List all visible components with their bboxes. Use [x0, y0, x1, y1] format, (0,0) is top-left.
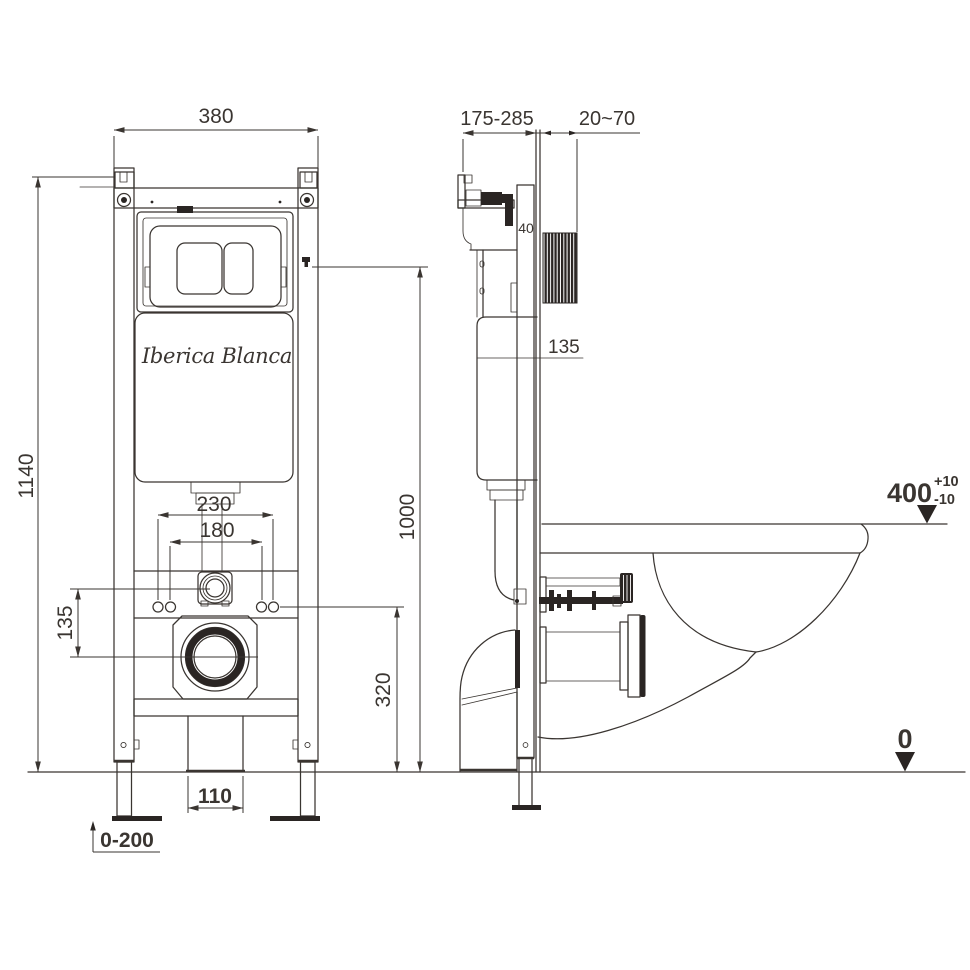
- bolt-hole-outer-left: [153, 602, 163, 612]
- level-marker-0: [895, 752, 915, 772]
- bottom-crossbar: [134, 699, 298, 716]
- wall-dim-arrow-left: [543, 131, 551, 136]
- supply-drop-pipe: [505, 202, 513, 226]
- dim-leg-range: 0-200: [100, 829, 154, 852]
- connector-ring-inner: [206, 579, 224, 597]
- column-pinhole: [523, 743, 528, 748]
- left-leg-pinhole: [121, 742, 126, 747]
- side-dimensions: 175-285 20~70 400 +10 -10 0: [460, 108, 958, 772]
- dim-bowl-tol-minus: -10: [934, 492, 955, 508]
- dim-outlet-width: 110: [198, 785, 232, 808]
- dim-bowl-height: 400: [887, 478, 932, 508]
- cistern-tank: [135, 313, 293, 482]
- rod-buffer-block: [620, 573, 633, 603]
- side-flushpipe-elbow: [495, 571, 514, 600]
- technical-drawing-page: Iberica Blanca: [0, 0, 970, 970]
- dim-connector-offset: 135: [54, 605, 77, 640]
- wall-dim-arrow-right: [569, 131, 577, 136]
- drain-elbow: [460, 630, 520, 771]
- flush-button-large: [177, 243, 222, 294]
- installation-frame-drawing: Iberica Blanca: [0, 0, 970, 970]
- dim-bowl-tol-plus: +10: [934, 474, 959, 490]
- right-rivet-dot: [279, 201, 282, 204]
- bowl-front-curve: [756, 553, 860, 652]
- dim-bolt-inner: 180: [199, 519, 234, 542]
- tank-side-outline: [477, 317, 537, 480]
- tank-base-step1: [487, 480, 525, 490]
- finished-wall-hatch: [543, 233, 577, 303]
- dim-tank-ref: 135: [548, 337, 580, 358]
- left-hanger-tab: [115, 172, 134, 188]
- left-hanger-notch: [120, 172, 127, 182]
- drain-spool: [540, 615, 646, 697]
- flush-plate: [150, 226, 281, 307]
- bolt-hole-inner-right: [257, 602, 267, 612]
- supply-fitting: [466, 190, 481, 206]
- bolt-hole-outer-right: [269, 602, 279, 612]
- dim-wall-thickness: 20~70: [579, 108, 635, 130]
- side-view: 40 135: [458, 130, 947, 810]
- dim-frame-depth: 175-285: [460, 108, 533, 130]
- side-flushpipe-dot: [515, 599, 519, 603]
- connector-ring-outer: [200, 573, 230, 603]
- left-leg-clip: [134, 740, 139, 749]
- dim-profile-depth: 40: [518, 220, 534, 236]
- bowl-back-curve: [653, 553, 756, 652]
- left-leg: [117, 762, 132, 816]
- bolt-hole-inner-left: [166, 602, 176, 612]
- left-rail: [114, 168, 134, 762]
- dim-bolt-outer: 230: [196, 493, 231, 516]
- elbow-flange: [515, 630, 520, 688]
- left-screw-center: [121, 197, 127, 203]
- tank-base-step2: [490, 490, 523, 500]
- access-opening-inner: [143, 218, 287, 306]
- right-screw-center: [304, 197, 310, 203]
- flush-button-small: [224, 243, 253, 294]
- tank-lid-profile: [463, 208, 471, 250]
- right-leg: [301, 762, 316, 816]
- water-inlet-marker: [302, 257, 310, 267]
- front-dimensions: 380 1140 230 180 135 320 1000 110: [15, 105, 428, 852]
- access-opening-outer: [137, 212, 293, 312]
- dim-floor-level: 0: [897, 724, 912, 754]
- brand-logo: Iberica Blanca: [141, 344, 292, 368]
- flush-pipe-collar: [191, 482, 240, 493]
- bowl-nose: [860, 524, 868, 553]
- dim-drain-height: 320: [372, 672, 395, 707]
- right-hanger-notch: [305, 172, 312, 182]
- plate-latch: [177, 206, 193, 213]
- toilet-bowl-profile: [538, 524, 947, 739]
- dim-frame-height: 1140: [15, 453, 38, 498]
- left-foot-plate: [112, 816, 162, 821]
- side-foot-plate: [512, 805, 541, 810]
- plate-clip-right: [281, 267, 286, 287]
- bowl-bottom-curve: [538, 652, 756, 739]
- supply-valve-body: [481, 192, 502, 205]
- mounting-rod: [539, 573, 633, 612]
- plate-clip-left: [145, 267, 150, 287]
- dim-inlet-height: 1000: [396, 494, 419, 541]
- top-crossbar: [114, 188, 318, 208]
- supply-valve-nut: [502, 194, 513, 203]
- right-leg-clip: [293, 740, 298, 749]
- left-rivet-dot: [151, 201, 154, 204]
- tank-neck-detail: [511, 283, 517, 312]
- right-leg-pinhole: [305, 742, 310, 747]
- dim-frame-width: 380: [198, 105, 233, 128]
- right-hanger-tab: [300, 172, 317, 188]
- right-foot-plate: [270, 816, 320, 821]
